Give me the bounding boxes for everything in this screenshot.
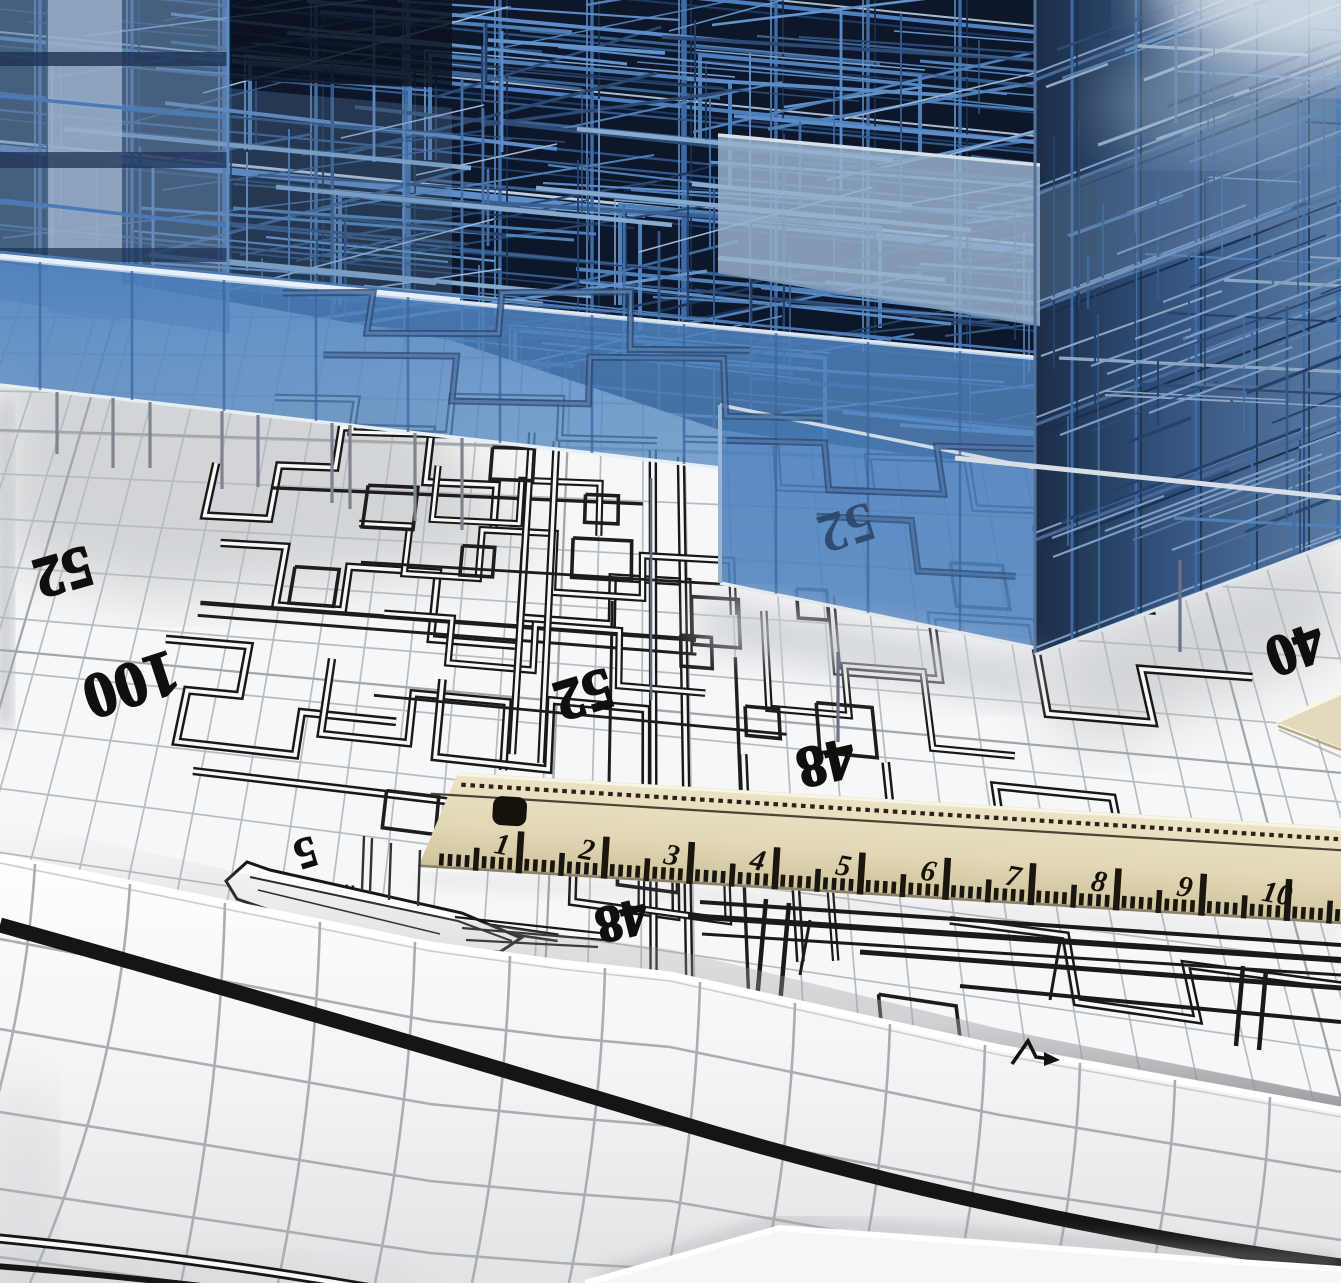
svg-text:10: 10 — [1259, 875, 1295, 913]
